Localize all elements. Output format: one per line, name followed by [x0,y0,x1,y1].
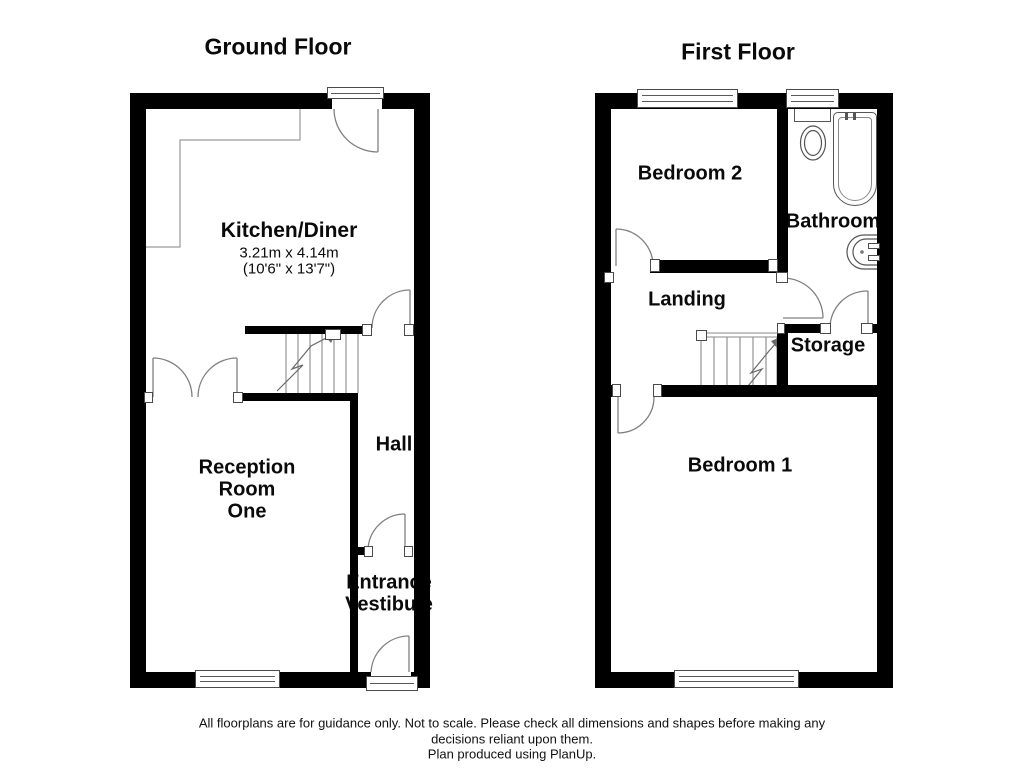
ff-wall-right [877,93,893,688]
bedroom2-door-arc [616,229,653,266]
kitchen-dimensions-imperial: (10'6" x 13'7") [243,261,335,278]
front-door-arc [371,636,409,674]
kitchen-dimensions-metric: 3.21m x 4.14m [239,245,338,262]
ff-wall-storage-top [783,324,822,333]
back-door-arc [334,109,378,152]
reception-window [195,670,280,688]
double-door-right-arc [198,358,237,397]
jamb-bedroom2-door [650,259,660,272]
landing-label: Landing [648,289,726,312]
jamb-storage-door-right [861,323,873,334]
reception-label-line1: Reception [199,457,296,480]
ff-stairs-newel-post [696,330,707,341]
gf-wall-hall-divider [350,393,358,672]
bedroom1-label: Bedroom 1 [688,455,792,478]
reception-label-line3: One [228,501,267,524]
bath-tap-left [845,112,848,120]
hall-label: Hall [376,434,413,457]
double-door-left-arc [153,358,192,397]
disclaimer-line3: Plan produced using PlanUp. [428,747,596,762]
bathroom-label: Bathroom [786,211,880,234]
vestibule-door-arc [368,514,405,551]
disclaimer-line1: All floorplans are for guidance only. No… [199,716,825,731]
jamb-double-door-right [233,392,243,403]
front-door-threshold [366,676,418,691]
gf-wall-left [130,93,146,688]
sink-tap-bottom [868,255,880,261]
bathroom-window [786,89,839,108]
bathroom-door-arc [783,278,823,318]
jamb-storage-door-left [820,323,831,334]
floorplan-canvas: Ground Floor First Floor Kitchen/Diner 3… [0,0,1024,768]
jamb-kitchen-door-right [404,324,414,336]
gf-wall-reception [243,393,357,401]
gf-wall-right [414,93,430,688]
jamb-vestibule-door-right [404,546,413,557]
jamb-double-door-left [144,392,153,403]
jamb-bedroom2-wall-end [768,259,778,272]
bedroom1-door-arc [618,397,654,433]
jamb-bedroom2-hinge [604,272,614,283]
first-floor-stairs [701,333,777,385]
reception-label-line2: Room [219,479,276,502]
ground-floor-title: Ground Floor [205,34,352,61]
ff-wall-bedroom2 [650,260,777,273]
ff-wall-bathroom-divider [777,109,788,275]
jamb-bedroom1-door-right [653,384,662,397]
back-door-panel [327,87,384,99]
storage-label: Storage [791,335,865,358]
jamb-storage-left-end [777,323,785,334]
toilet-bowl [801,126,826,160]
gf-stairs-newel-post [325,329,341,340]
bathroom-sink [847,235,877,269]
bedroom2-window [637,89,738,108]
sink-tap-top [868,243,880,249]
jamb-bedroom1-door-left [612,384,621,397]
gf-wall-kitchen-hall [245,326,370,334]
bedroom1-window [674,670,799,688]
jamb-vestibule-door-left [364,546,373,557]
jamb-bathroom-door [776,272,788,283]
bedroom2-label: Bedroom 2 [638,163,742,186]
kitchen-hall-door-arc [372,290,410,328]
bath-tap-right [853,112,856,120]
first-floor-title: First Floor [681,39,795,66]
ff-wall-bedroom1 [662,385,877,397]
jamb-kitchen-door-left [362,324,372,336]
gf-wall-top [130,93,430,109]
disclaimer-line2: decisions reliant upon them. [431,732,593,747]
bathtub-inner [838,117,872,201]
kitchen-diner-label: Kitchen/Diner [221,219,358,243]
